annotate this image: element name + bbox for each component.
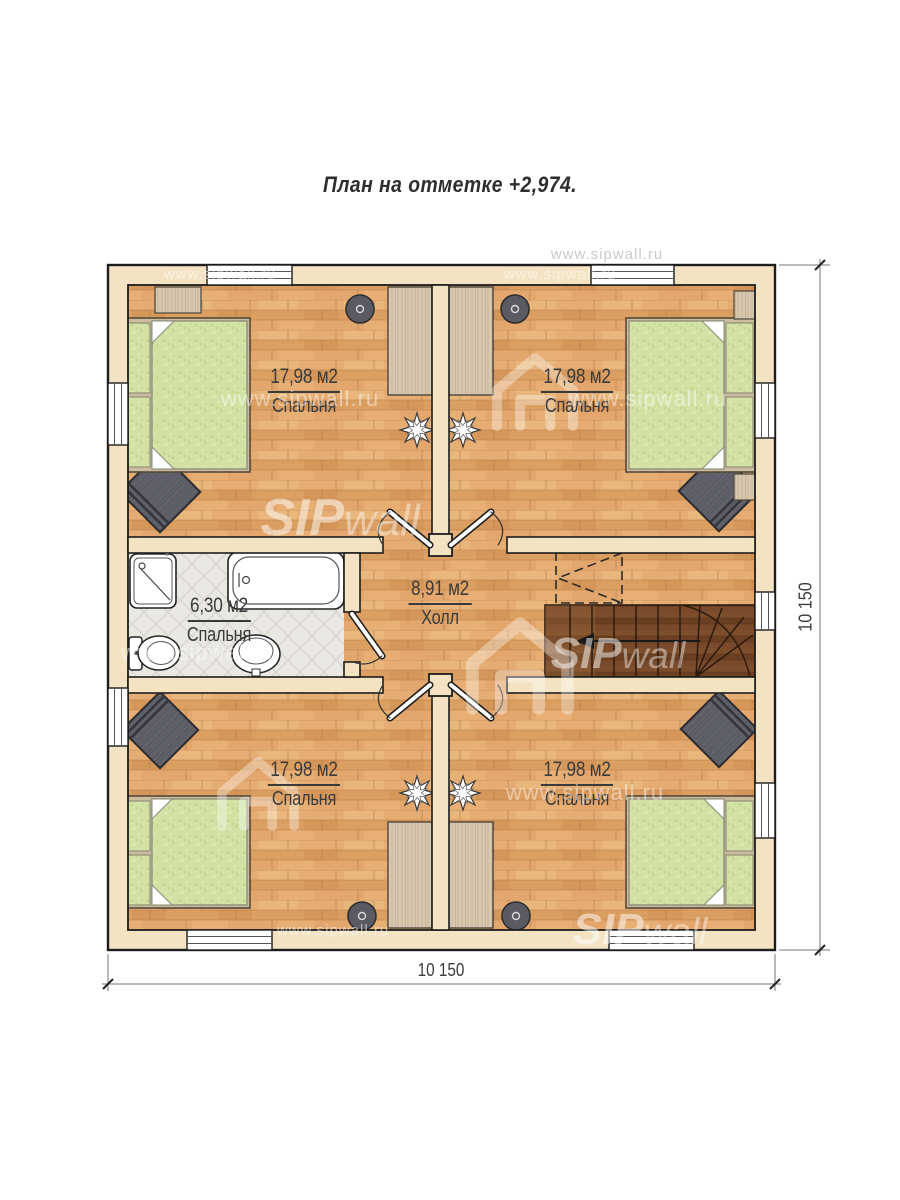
watermark-url: www.sipwall.ru xyxy=(277,922,389,939)
watermark-sipwall-logo: SIPwall xyxy=(260,492,420,544)
watermark-sipwall-logo: SIPwall xyxy=(551,632,686,676)
room-name: Спальня xyxy=(268,786,340,810)
bed-bottom-left xyxy=(120,796,250,908)
bed-bottom-right xyxy=(626,796,756,908)
watermark-url: www.sipwall.ru xyxy=(164,266,276,283)
room-area: 6,30 м2 xyxy=(188,595,251,622)
watermark-brand-light: wall xyxy=(644,911,708,952)
room-label-hall: 8,91 м2 Холл xyxy=(409,578,472,629)
floorplan-canvas: План на отметке +2,974. 17,98 м2 Спальня… xyxy=(0,0,900,1200)
watermark-url: www.sipwall.ru xyxy=(121,640,279,666)
room-area: 8,91 м2 xyxy=(409,578,472,605)
shower-tray xyxy=(130,547,176,608)
room-area: 17,98 м2 xyxy=(268,759,340,786)
watermark-brand-light: wall xyxy=(344,496,420,545)
watermark-url: www.sipwall.ru xyxy=(221,386,379,412)
watermark-url: www.sipwall.ru xyxy=(506,780,664,806)
watermark-url: www.sipwall.ru xyxy=(569,386,727,412)
watermark-brand-bold: SIP xyxy=(573,905,644,954)
plan-title: План на отметке +2,974. xyxy=(323,172,577,198)
watermark-sipwall-logo: SIPwall xyxy=(573,908,708,952)
watermark-brand-light: wall xyxy=(622,635,686,676)
dimension-bottom: 10 150 xyxy=(418,960,465,981)
room-name: Холл xyxy=(409,605,472,629)
watermark-brand-bold: SIP xyxy=(260,489,344,547)
watermark-brand-bold: SIP xyxy=(551,629,622,678)
room-label-bedroom-bottom-left: 17,98 м2 Спальня xyxy=(268,759,340,810)
dimension-right: 10 150 xyxy=(796,582,817,632)
room-label-bathroom: 6,30 м2 Спальня xyxy=(187,595,251,646)
watermark-url: www.sipwall.ru xyxy=(504,266,616,283)
watermark-url: www.sipwall.ru xyxy=(551,246,663,263)
